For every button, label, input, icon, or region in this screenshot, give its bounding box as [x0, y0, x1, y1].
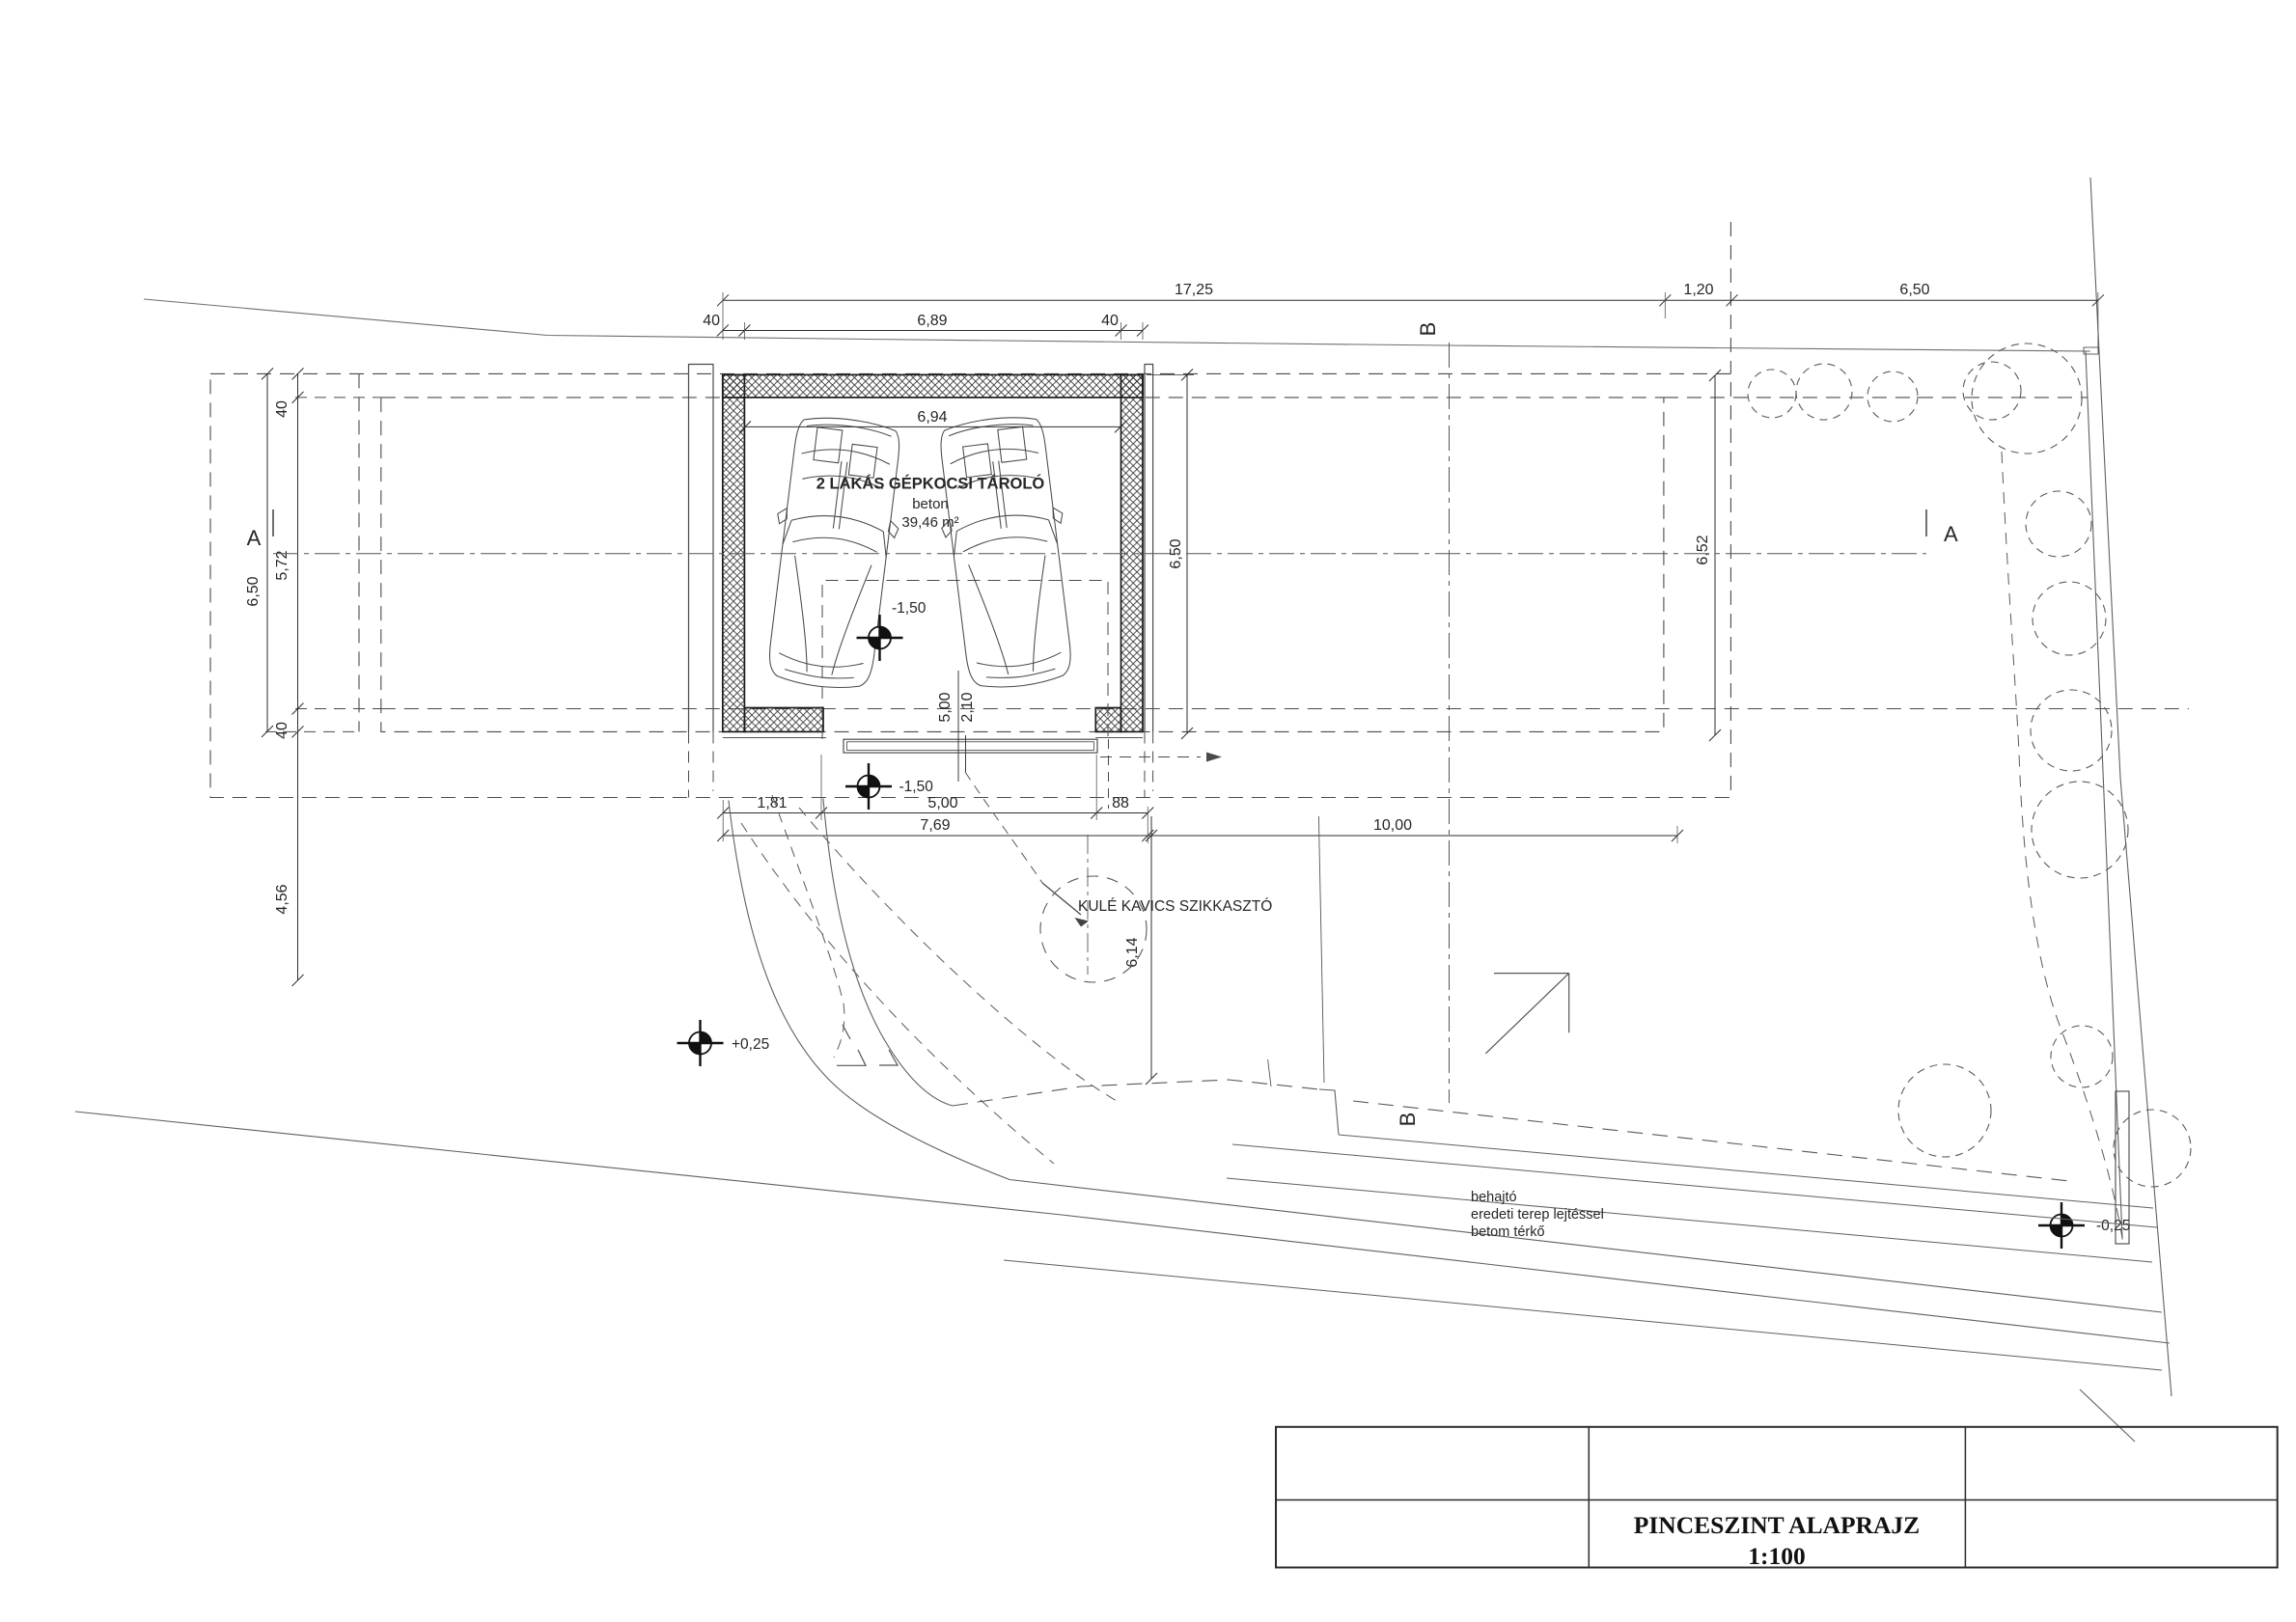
- svg-text:1,20: 1,20: [1683, 282, 1713, 298]
- svg-text:40: 40: [703, 313, 720, 329]
- svg-text:B: B: [1416, 322, 1440, 337]
- svg-text:5,72: 5,72: [274, 550, 290, 580]
- svg-text:-1,50: -1,50: [899, 779, 934, 795]
- svg-text:6,94: 6,94: [917, 409, 947, 426]
- svg-text:6,50: 6,50: [1899, 282, 1929, 298]
- svg-text:PINCESZINT ALAPRAJZ: PINCESZINT ALAPRAJZ: [1634, 1511, 1920, 1539]
- svg-text:5,00: 5,00: [937, 692, 954, 722]
- svg-text:KULÉ KAVICS SZIKKASZTÓ: KULÉ KAVICS SZIKKASZTÓ: [1078, 898, 1272, 915]
- svg-text:5,00: 5,00: [927, 795, 957, 811]
- svg-text:2,10: 2,10: [959, 692, 976, 722]
- svg-text:1:100: 1:100: [1748, 1542, 1806, 1570]
- svg-text:40: 40: [274, 722, 290, 739]
- svg-text:40: 40: [1101, 313, 1119, 329]
- svg-text:1,81: 1,81: [757, 795, 787, 811]
- svg-text:6,14: 6,14: [1124, 937, 1141, 967]
- svg-text:88: 88: [1112, 795, 1129, 811]
- svg-text:A: A: [1944, 522, 1958, 546]
- svg-text:10,00: 10,00: [1373, 817, 1412, 834]
- svg-text:eredeti terep lejtéssel: eredeti terep lejtéssel: [1471, 1207, 1604, 1223]
- svg-text:B: B: [1396, 1113, 1420, 1127]
- svg-text:+0,25: +0,25: [732, 1036, 769, 1053]
- svg-text:beton: beton: [912, 496, 949, 512]
- svg-text:-0,25: -0,25: [2096, 1218, 2130, 1234]
- svg-text:betom térkő: betom térkő: [1471, 1224, 1545, 1240]
- svg-text:7,69: 7,69: [920, 817, 950, 834]
- svg-text:behajtó: behajtó: [1471, 1190, 1517, 1205]
- svg-text:2 LAKÁS GÉPKOCSI TÁROLÓ: 2 LAKÁS GÉPKOCSI TÁROLÓ: [816, 475, 1045, 493]
- svg-text:39,46 m²: 39,46 m²: [901, 514, 958, 531]
- svg-text:6,89: 6,89: [917, 313, 947, 329]
- svg-text:6,52: 6,52: [1695, 535, 1711, 564]
- svg-text:-1,50: -1,50: [892, 600, 927, 617]
- svg-text:4,56: 4,56: [274, 884, 290, 914]
- svg-text:17,25: 17,25: [1175, 282, 1213, 298]
- svg-text:6,50: 6,50: [245, 576, 262, 606]
- svg-text:40: 40: [274, 400, 290, 418]
- svg-text:A: A: [247, 526, 262, 550]
